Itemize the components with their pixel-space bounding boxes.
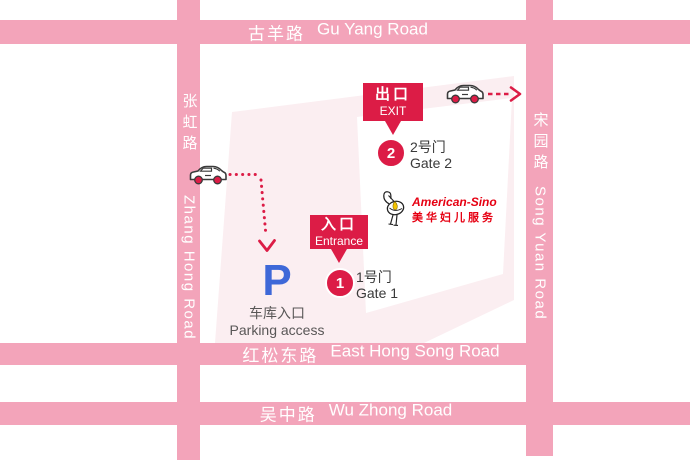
road-label-east-hong-song-zh: 红松东路 [242, 342, 318, 367]
gate2-label-zh: 2号门 [410, 139, 452, 155]
gate1-marker: 1 [325, 268, 355, 298]
arrow-down-icon [230, 175, 275, 251]
entrance-callout-tail [331, 249, 347, 263]
entrance-callout-zh: 入口 [310, 216, 368, 234]
road-label-gu-yang-zh: 古羊路 [248, 20, 305, 45]
gate1-label-en: Gate 1 [356, 285, 398, 301]
exit-callout-en: EXIT [363, 104, 423, 118]
entrance-route [191, 167, 275, 251]
exit-route [448, 86, 521, 103]
gate2-marker: 2 [376, 138, 406, 168]
exit-callout: 出口 EXIT [363, 83, 423, 121]
exit-callout-zh: 出口 [363, 86, 423, 104]
road-label-zhang-hong-en: Zhang Hong Road [181, 195, 198, 340]
logo-name-en: American-Sino [412, 195, 497, 209]
access-map: 古羊路 Gu Yang Road 红松东路 East Hong Song Roa… [0, 0, 690, 460]
gate2-number: 2 [387, 145, 395, 162]
road-label-song-yuan-en: Song Yuan Road [532, 186, 549, 320]
road-label-gu-yang: 古羊路 Gu Yang Road [248, 20, 428, 45]
road-label-gu-yang-en: Gu Yang Road [317, 20, 428, 45]
arrow-right-icon [488, 88, 520, 101]
road-label-song-yuan-zh: 宋园路 [530, 112, 551, 175]
parking-label-zh: 车库入口 [207, 305, 347, 322]
road-label-east-hong-song-en: East Hong Song Road [330, 342, 499, 367]
road-label-east-hong-song: 红松东路 East Hong Song Road [242, 342, 499, 367]
gate1-number: 1 [336, 275, 344, 292]
parking-label: 车库入口 Parking access [207, 305, 347, 339]
stork-logo-icon [384, 192, 405, 226]
gate2-label: 2号门 Gate 2 [410, 139, 452, 171]
road-label-wu-zhong-en: Wu Zhong Road [329, 401, 452, 426]
car-icon [448, 86, 484, 103]
entrance-callout: 入口 Entrance [310, 215, 368, 249]
entrance-callout-en: Entrance [310, 234, 368, 248]
gate1-label: 1号门 Gate 1 [356, 269, 398, 301]
gate1-label-zh: 1号门 [356, 269, 398, 285]
parking-label-en: Parking access [207, 322, 347, 339]
road-label-wu-zhong: 吴中路 Wu Zhong Road [260, 401, 452, 426]
gate2-label-en: Gate 2 [410, 155, 452, 171]
logo-name-zh: 美华妇儿服务 [412, 209, 496, 225]
exit-callout-tail [385, 121, 401, 135]
parking-icon: P [255, 260, 299, 302]
road-label-wu-zhong-zh: 吴中路 [260, 401, 317, 426]
road-label-zhang-hong-zh: 张虹路 [179, 93, 200, 156]
